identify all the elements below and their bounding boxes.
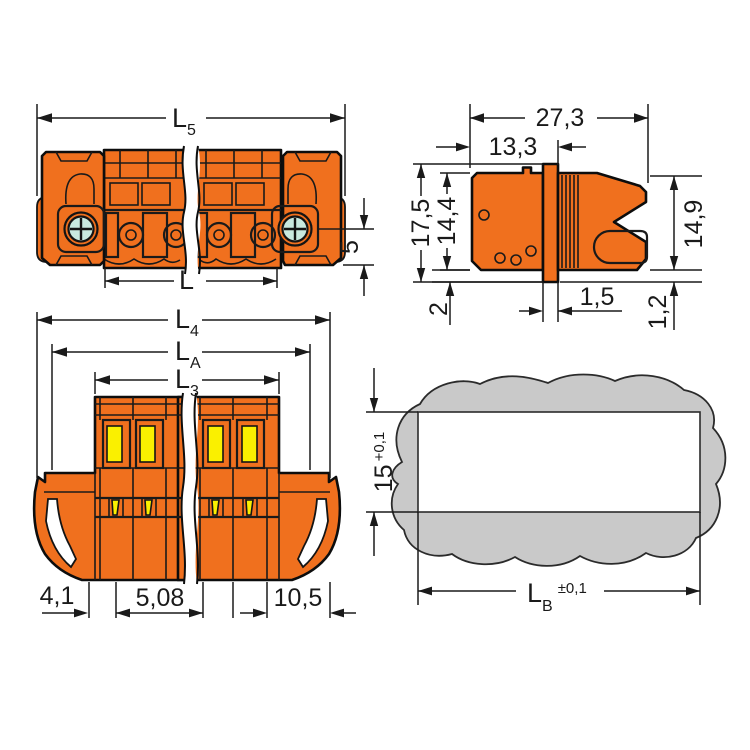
yellow-window: [208, 426, 223, 462]
dim-27-3-label: 27,3: [536, 104, 585, 132]
panel-cutout-view: 15+0,1 LB±0,1: [366, 368, 725, 615]
technical-drawing-canvas: L5 L 5: [0, 0, 750, 750]
top-view: L5 L 5: [37, 103, 374, 296]
dim-4-1: 4,1: [40, 582, 88, 617]
yellow-lever: [212, 500, 219, 515]
dim-10-5: 10,5: [240, 584, 356, 617]
dim-1-5-label: 1,5: [580, 283, 615, 311]
dim-flange-thickness: 1,5: [519, 282, 622, 322]
side-view-body: [472, 164, 647, 282]
yellow-lever: [145, 500, 152, 515]
connector-dimension-drawing: L5 L 5: [0, 0, 750, 750]
front-view: L4 LA L3: [34, 304, 356, 618]
dim-14-4-label: 14,4: [433, 197, 461, 246]
dim-4-1-label: 4,1: [40, 582, 75, 610]
panel-cutout-rect: [418, 412, 700, 512]
dim-17-5-label: 17,5: [407, 199, 435, 248]
top-view-right-end: [272, 152, 345, 265]
dim-1-2-label: 1,2: [644, 295, 672, 330]
right-screw: [279, 213, 312, 246]
rear-housing: [472, 168, 543, 271]
dim-flange-overhang: 2: [425, 270, 543, 325]
dim-15-label: 15+0,1: [370, 432, 398, 492]
dim-body-height: 14,4: [433, 173, 470, 270]
dim-rear-depth: 13,3: [436, 133, 586, 165]
dim-plug-height: 14,9: [650, 176, 708, 270]
dim-5-08-label: 5,08: [136, 584, 185, 612]
right-end-block: [283, 152, 341, 265]
yellow-lever: [112, 500, 119, 515]
mounting-flange: [543, 164, 558, 282]
yellow-window: [140, 426, 155, 462]
dim-l4-label: L4: [175, 304, 199, 340]
dim-l5-label: L5: [172, 103, 196, 139]
dim-14-9-label: 14,9: [680, 200, 708, 249]
left-end-block: [42, 152, 104, 265]
side-view: 27,3 13,3 17,5 14,: [407, 104, 708, 330]
dim-l: L: [105, 265, 277, 295]
dim-lb-label: LB±0,1: [527, 578, 587, 615]
dim-5-08: 5,08: [116, 584, 203, 617]
dim-2-label: 2: [425, 302, 453, 316]
yellow-lever: [246, 500, 253, 515]
yellow-window: [242, 426, 257, 462]
plug-section: [558, 173, 646, 270]
left-screw: [65, 213, 98, 246]
top-view-left-end: [37, 152, 104, 265]
yellow-window: [107, 426, 122, 462]
dim-10-5-label: 10,5: [274, 584, 323, 612]
dim-l-label: L: [179, 265, 194, 295]
dim-5-label: 5: [336, 240, 364, 254]
dim-13-3-label: 13,3: [489, 133, 538, 161]
